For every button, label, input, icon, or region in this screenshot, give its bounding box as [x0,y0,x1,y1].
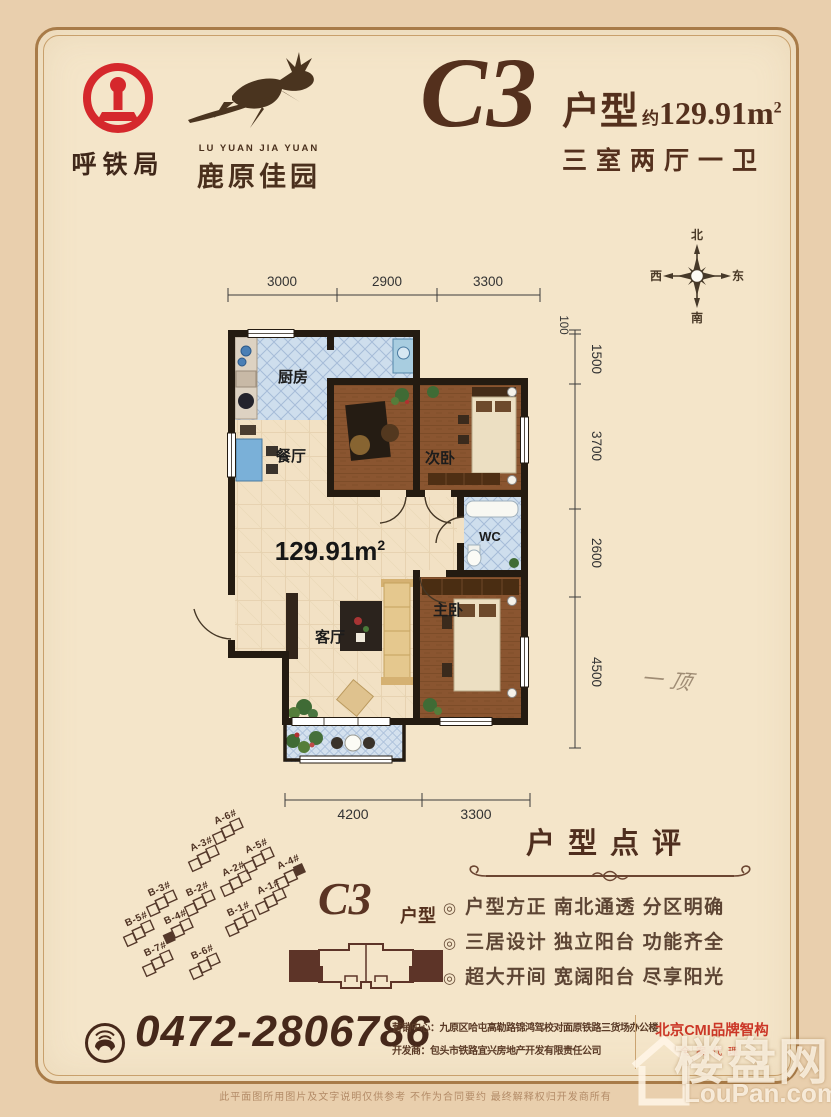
developer-line: 开发商：包头市铁路宜兴房地产开发有限责任公司 [392,1040,637,1063]
brand-name-en: LU YUAN JIA YUAN [178,143,340,154]
bullet-text: 户型方正 南北通透 分区明确 [465,892,725,919]
compass-rose: 北 南 西 东 [649,228,745,328]
plan-area-sup: 2 [377,537,385,553]
dim-top-1: 3000 [267,274,297,289]
plan-area-number: 129.91m [275,536,378,566]
floorplan: 厨房 餐厅 次卧 WC 客厅 主卧 129.91m2 3000 2900 330… [190,265,610,825]
master-label: 主卧 [433,601,463,619]
area-number: 129.91m [659,95,774,131]
unit-marker-code: C3 [318,872,372,925]
marketing-value: 九原区哈屯高勒路锦鸿驾校对面原铁路三货场办公楼 [440,1023,659,1034]
kitchen-label: 厨房 [278,368,308,386]
review-section: 户型点评 ◎ 户型方正 南北通透 分区明确 ◎ 三居设计 独立阳台 功能齐全 ◎… [443,820,777,997]
railway-logo: 呼铁局 [62,58,174,181]
wc-label: WC [479,529,501,544]
dim-top-3: 3300 [473,274,503,289]
unit-marker-suffix: 户型 [400,902,436,928]
plan-area-label: 129.91m2 [275,536,386,566]
deer-icon [180,50,338,138]
ornament-divider-icon [460,864,760,888]
bullet-text: 超大开间 宽阔阳台 尽享阳光 [465,962,725,989]
compass-west-label: 西 [650,269,662,283]
unit-footprint-icon [285,936,447,996]
developer-value: 包头市铁路宜兴房地产开发有限责任公司 [430,1046,601,1057]
bedroom2-label: 次卧 [425,449,455,467]
compass-north-label: 北 [691,228,703,242]
review-bullet: ◎ 户型方正 南北通透 分区明确 [443,892,777,927]
unit-area-line: 户型约129.91m2 [562,80,792,135]
unit-marker: C3 户型 [280,884,460,1004]
developer-label: 开发商： [392,1046,430,1057]
bullet-marker-icon: ◎ [443,934,456,952]
phone-icon [83,1021,127,1065]
marketing-label: 营销中心： [392,1023,440,1034]
watermark-en: LouPan.com [684,1078,831,1109]
area-value: 129.91m2 [659,95,782,131]
dim-right-2: 1500 [589,344,604,374]
dim-right-5: 4500 [589,657,604,687]
handwritten-note: 一顶 [638,662,773,733]
phone-number: 0472-2806786 [135,1007,431,1057]
dining-label: 餐厅 [276,447,306,465]
contact-info: 营销中心：九原区哈屯高勒路锦鸿驾校对面原铁路三货场办公楼 开发商：包头市铁路宜兴… [392,1017,637,1063]
living-label: 客厅 [314,628,345,646]
brand-name-cn: 鹿原佳园 [178,155,340,194]
poster: 呼铁局 LU YUAN JIA YUAN 鹿原佳园 C3 户型约129.91m2… [0,0,831,1117]
watermark: 楼盘网 LouPan.com [628,1028,831,1114]
area-sup: 2 [774,99,782,116]
floorplan-drawing: 厨房 餐厅 次卧 WC 客厅 主卧 129.91m2 3000 2900 330… [190,265,610,825]
marketing-line: 营销中心：九原区哈屯高勒路锦鸿驾校对面原铁路三货场办公楼 [392,1017,637,1040]
bullet-text: 三居设计 独立阳台 功能齐全 [465,927,725,954]
rooms-desc: 三室两厅一卫 [562,141,792,177]
unit-title-right: 户型约129.91m2 三室两厅一卫 [562,80,792,177]
dim-right-1: 100 [557,315,569,334]
dim-top-2: 2900 [372,274,402,289]
bullet-marker-icon: ◎ [443,899,456,917]
dim-right-3: 3700 [589,431,604,461]
compass-east-label: 东 [732,268,744,283]
handwritten-note-text: 一顶 [638,663,704,697]
compass-icon: 北 南 西 东 [649,228,745,328]
review-bullet: ◎ 三居设计 独立阳台 功能齐全 [443,927,777,962]
unit-suffix: 户型 [562,91,638,133]
unit-code: C3 [420,38,537,148]
unit-title: C3 户型约129.91m2 三室两厅一卫 [420,52,792,184]
dim-right-4: 2600 [589,538,604,568]
compass-south-label: 南 [691,310,703,325]
org-name: 呼铁局 [62,145,174,181]
brand-logo: LU YUAN JIA YUAN 鹿原佳园 [178,50,340,194]
railway-emblem-icon [78,58,158,138]
bullet-marker-icon: ◎ [443,969,456,987]
review-title: 户型点评 [443,820,777,862]
review-bullet: ◎ 超大开间 宽阔阳台 尽享阳光 [443,962,777,997]
area-approx-prefix: 约 [642,109,659,128]
